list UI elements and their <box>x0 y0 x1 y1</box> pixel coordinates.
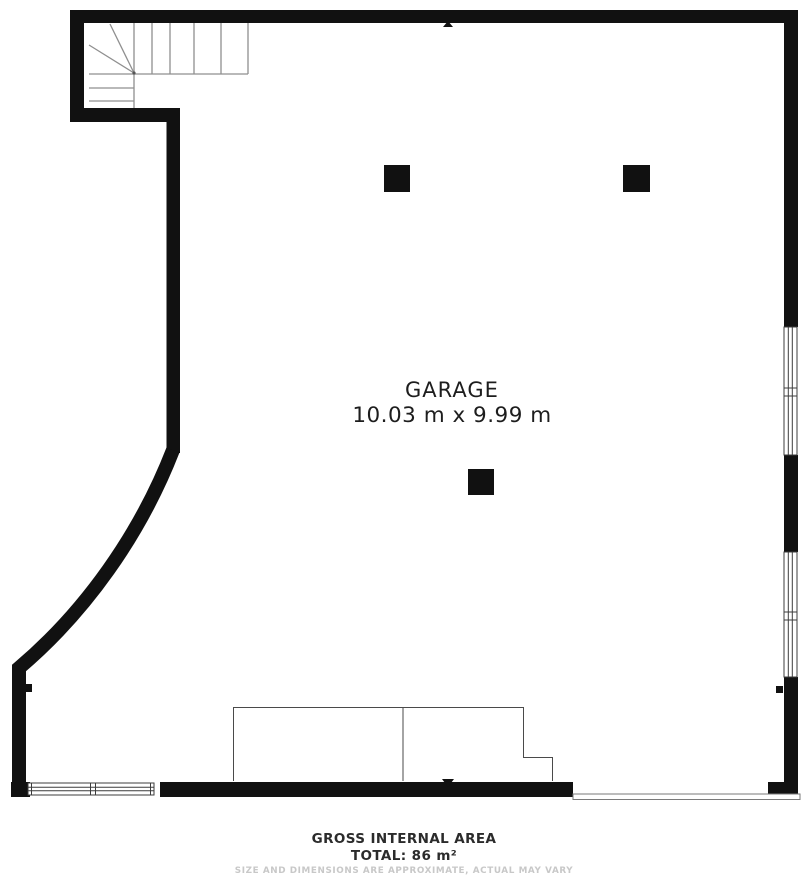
wall-nub-right <box>776 686 783 693</box>
window-frame <box>784 327 797 455</box>
wall-left-upper-vertical <box>167 108 181 453</box>
wall-stair-left <box>70 10 84 122</box>
parking-bay-border <box>234 708 553 782</box>
wall-left-curved <box>19 450 173 797</box>
room-dimensions-label: 10.03 m x 9.99 m <box>352 403 551 428</box>
staircase <box>89 23 248 108</box>
footer: GROSS INTERNAL AREA TOTAL: 86 m² SIZE AN… <box>235 831 573 876</box>
garage-door-opening <box>573 794 800 800</box>
room-label: GARAGE <box>405 378 499 402</box>
pillars <box>384 165 650 495</box>
window-frame <box>784 552 797 677</box>
footer-disclaimer: SIZE AND DIMENSIONS ARE APPROXIMATE, ACT… <box>235 866 573 876</box>
pillar <box>623 165 650 192</box>
window-right-lower <box>784 552 797 677</box>
pillar <box>468 469 494 495</box>
parking-bay-outline <box>234 708 553 782</box>
pillar <box>384 165 410 192</box>
wall-right-upper <box>784 10 798 327</box>
window-right-upper <box>784 327 797 455</box>
wall-right-middle <box>784 455 798 552</box>
wall-top <box>70 10 798 23</box>
stair-winder-pivot <box>132 71 135 74</box>
footer-gross-area: GROSS INTERNAL AREA <box>312 831 497 847</box>
wall-nub-left <box>26 684 32 692</box>
window-bottom-left <box>28 783 154 795</box>
footer-total: TOTAL: 86 m² <box>351 848 457 864</box>
wall-stair-bottom-jog <box>70 108 180 122</box>
floor-plan-page: GARAGE 10.03 m x 9.99 m GROSS INTERNAL A… <box>0 0 808 883</box>
wall-bottom <box>160 782 573 797</box>
wall-right-lower <box>784 677 798 797</box>
floor-plan-drawing: GARAGE 10.03 m x 9.99 m GROSS INTERNAL A… <box>0 0 808 883</box>
